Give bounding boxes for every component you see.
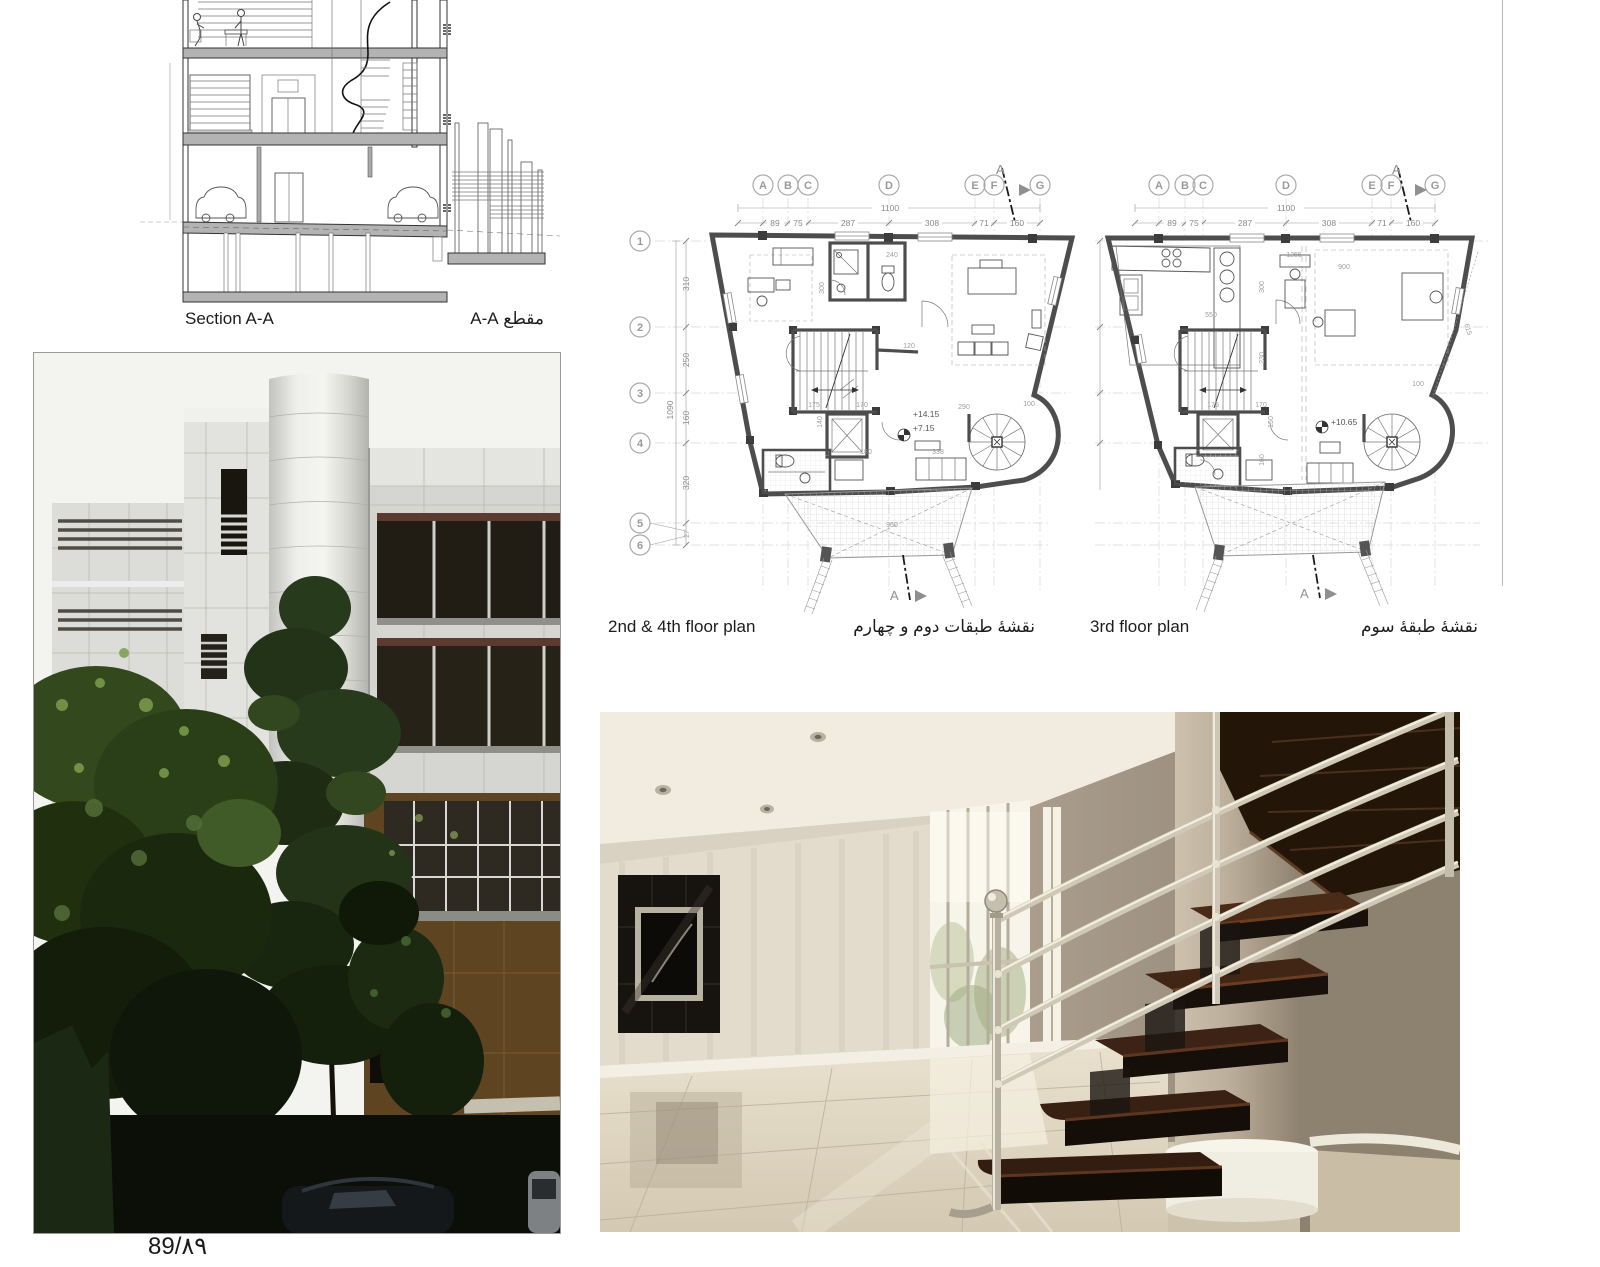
svg-text:170: 170 bbox=[1255, 402, 1267, 409]
svg-text:G: G bbox=[1036, 180, 1045, 192]
svg-text:615: 615 bbox=[1462, 323, 1472, 336]
svg-text:3: 3 bbox=[637, 388, 643, 400]
svg-text:1: 1 bbox=[637, 236, 643, 248]
svg-text:+7.15: +7.15 bbox=[913, 423, 935, 433]
section-spiral-stair bbox=[332, 0, 390, 142]
svg-text:338: 338 bbox=[932, 449, 944, 456]
svg-text:+10.65: +10.65 bbox=[1331, 417, 1358, 427]
svg-text:B: B bbox=[784, 180, 792, 192]
interior-staircase-photo bbox=[600, 712, 1460, 1232]
svg-text:B: B bbox=[1181, 180, 1189, 192]
svg-text:960: 960 bbox=[886, 522, 898, 529]
svg-text:89: 89 bbox=[770, 218, 780, 228]
svg-text:+14.15: +14.15 bbox=[913, 409, 940, 419]
section-cut-marker-bottom: A bbox=[890, 555, 927, 603]
svg-text:F: F bbox=[991, 180, 998, 192]
terrace bbox=[1195, 482, 1388, 612]
svg-text:E: E bbox=[1368, 180, 1375, 192]
svg-text:320: 320 bbox=[681, 476, 691, 490]
svg-text:6: 6 bbox=[637, 540, 643, 552]
svg-text:A: A bbox=[1155, 180, 1163, 192]
svg-text:5: 5 bbox=[637, 518, 643, 530]
svg-text:A: A bbox=[1300, 586, 1309, 601]
spiral-stair bbox=[969, 414, 1025, 470]
svg-text:308: 308 bbox=[925, 218, 939, 228]
svg-text:A: A bbox=[890, 588, 899, 603]
parked-car-2 bbox=[528, 1171, 560, 1233]
svg-text:140: 140 bbox=[817, 416, 824, 428]
svg-text:180: 180 bbox=[860, 449, 872, 456]
svg-text:A: A bbox=[996, 162, 1005, 177]
svg-text:300: 300 bbox=[1259, 281, 1266, 293]
svg-text:D: D bbox=[1282, 180, 1290, 192]
svg-text:900: 900 bbox=[1338, 264, 1350, 271]
svg-text:2: 2 bbox=[637, 322, 643, 334]
svg-text:287: 287 bbox=[1238, 218, 1252, 228]
plan-right-label-en: 3rd floor plan bbox=[1090, 617, 1189, 637]
right-wing bbox=[369, 448, 560, 831]
adjacent-elevation bbox=[447, 123, 560, 264]
svg-text:27: 27 bbox=[684, 530, 691, 538]
svg-text:100: 100 bbox=[1412, 381, 1424, 388]
column-grid-bubbles: A B C D E F G bbox=[1149, 175, 1445, 195]
svg-text:230: 230 bbox=[1259, 352, 1266, 364]
svg-text:300: 300 bbox=[819, 282, 826, 294]
svg-text:175: 175 bbox=[1207, 402, 1219, 409]
page-number: 89/۸۹ bbox=[148, 1232, 207, 1261]
svg-text:1090: 1090 bbox=[665, 400, 675, 419]
parked-car bbox=[282, 1179, 454, 1233]
section-cut-marker-top: A bbox=[1392, 162, 1427, 222]
svg-text:D: D bbox=[885, 180, 893, 192]
svg-text:160: 160 bbox=[681, 411, 691, 425]
svg-text:170: 170 bbox=[856, 402, 868, 409]
svg-text:150: 150 bbox=[1268, 416, 1275, 428]
svg-text:175: 175 bbox=[808, 402, 820, 409]
svg-text:71: 71 bbox=[1377, 218, 1387, 228]
svg-text:120: 120 bbox=[903, 343, 915, 350]
svg-text:A: A bbox=[759, 180, 767, 192]
svg-text:1100: 1100 bbox=[1277, 203, 1296, 213]
section-cut-marker-bottom: A bbox=[1300, 555, 1337, 601]
svg-text:308: 308 bbox=[1322, 218, 1336, 228]
svg-text:G: G bbox=[1431, 180, 1440, 192]
plan-left-label-en: 2nd & 4th floor plan bbox=[608, 617, 755, 637]
wall-niche bbox=[618, 875, 720, 1033]
svg-text:160: 160 bbox=[1259, 454, 1266, 466]
svg-text:75: 75 bbox=[793, 218, 803, 228]
car-silhouette bbox=[388, 187, 438, 222]
svg-text:240: 240 bbox=[886, 252, 898, 259]
building-exterior-scene bbox=[34, 353, 560, 1233]
svg-text:C: C bbox=[1199, 180, 1207, 192]
top-dimensions: 1100 89 75 287 308 71 160 bbox=[1132, 203, 1438, 228]
plan-right-label-fa: نقشهٔ طبقهٔ سوم bbox=[1280, 617, 1478, 637]
svg-text:71: 71 bbox=[979, 218, 989, 228]
spiral-stair bbox=[1364, 414, 1420, 470]
svg-text:160: 160 bbox=[1010, 218, 1024, 228]
page-divider-line bbox=[1502, 0, 1503, 586]
svg-text:C: C bbox=[804, 180, 812, 192]
svg-text:1255: 1255 bbox=[1286, 252, 1302, 259]
svg-text:100: 100 bbox=[1023, 401, 1035, 408]
people-figures bbox=[190, 10, 245, 47]
section-drawing bbox=[140, 0, 560, 306]
svg-text:A: A bbox=[1392, 162, 1401, 177]
svg-text:290: 290 bbox=[958, 404, 970, 411]
svg-text:160: 160 bbox=[1406, 218, 1420, 228]
terrace bbox=[785, 488, 972, 614]
svg-text:F: F bbox=[1388, 180, 1395, 192]
svg-text:550: 550 bbox=[1205, 312, 1217, 319]
svg-text:310: 310 bbox=[681, 277, 691, 291]
svg-text:1100: 1100 bbox=[881, 203, 900, 213]
car-silhouette bbox=[196, 187, 246, 222]
section-label-en: Section A-A bbox=[185, 309, 274, 329]
plan-left-label-fa: نقشهٔ طبقات دوم و چهارم bbox=[835, 617, 1035, 637]
svg-text:4: 4 bbox=[637, 438, 644, 450]
svg-text:75: 75 bbox=[1189, 218, 1199, 228]
svg-text:E: E bbox=[971, 180, 978, 192]
interior-scene bbox=[600, 712, 1460, 1232]
svg-text:89: 89 bbox=[1167, 218, 1177, 228]
svg-text:287: 287 bbox=[841, 218, 855, 228]
floor-plan-2nd-4th: A B C D E F G 1 2 3 4 5 6 1100 bbox=[600, 160, 1080, 620]
building-exterior-photo bbox=[33, 352, 561, 1234]
floor-plan-3rd: A B C D E F G 1100 89 75 287 308 71 160 … bbox=[1080, 160, 1500, 620]
column-grid-bubbles: A B C D E F G bbox=[753, 175, 1050, 195]
portfolio-page: Section A-A مقطع A-A A B C D bbox=[0, 0, 1600, 1267]
svg-text:250: 250 bbox=[681, 353, 691, 367]
section-label-fa: مقطع A-A bbox=[420, 309, 544, 329]
